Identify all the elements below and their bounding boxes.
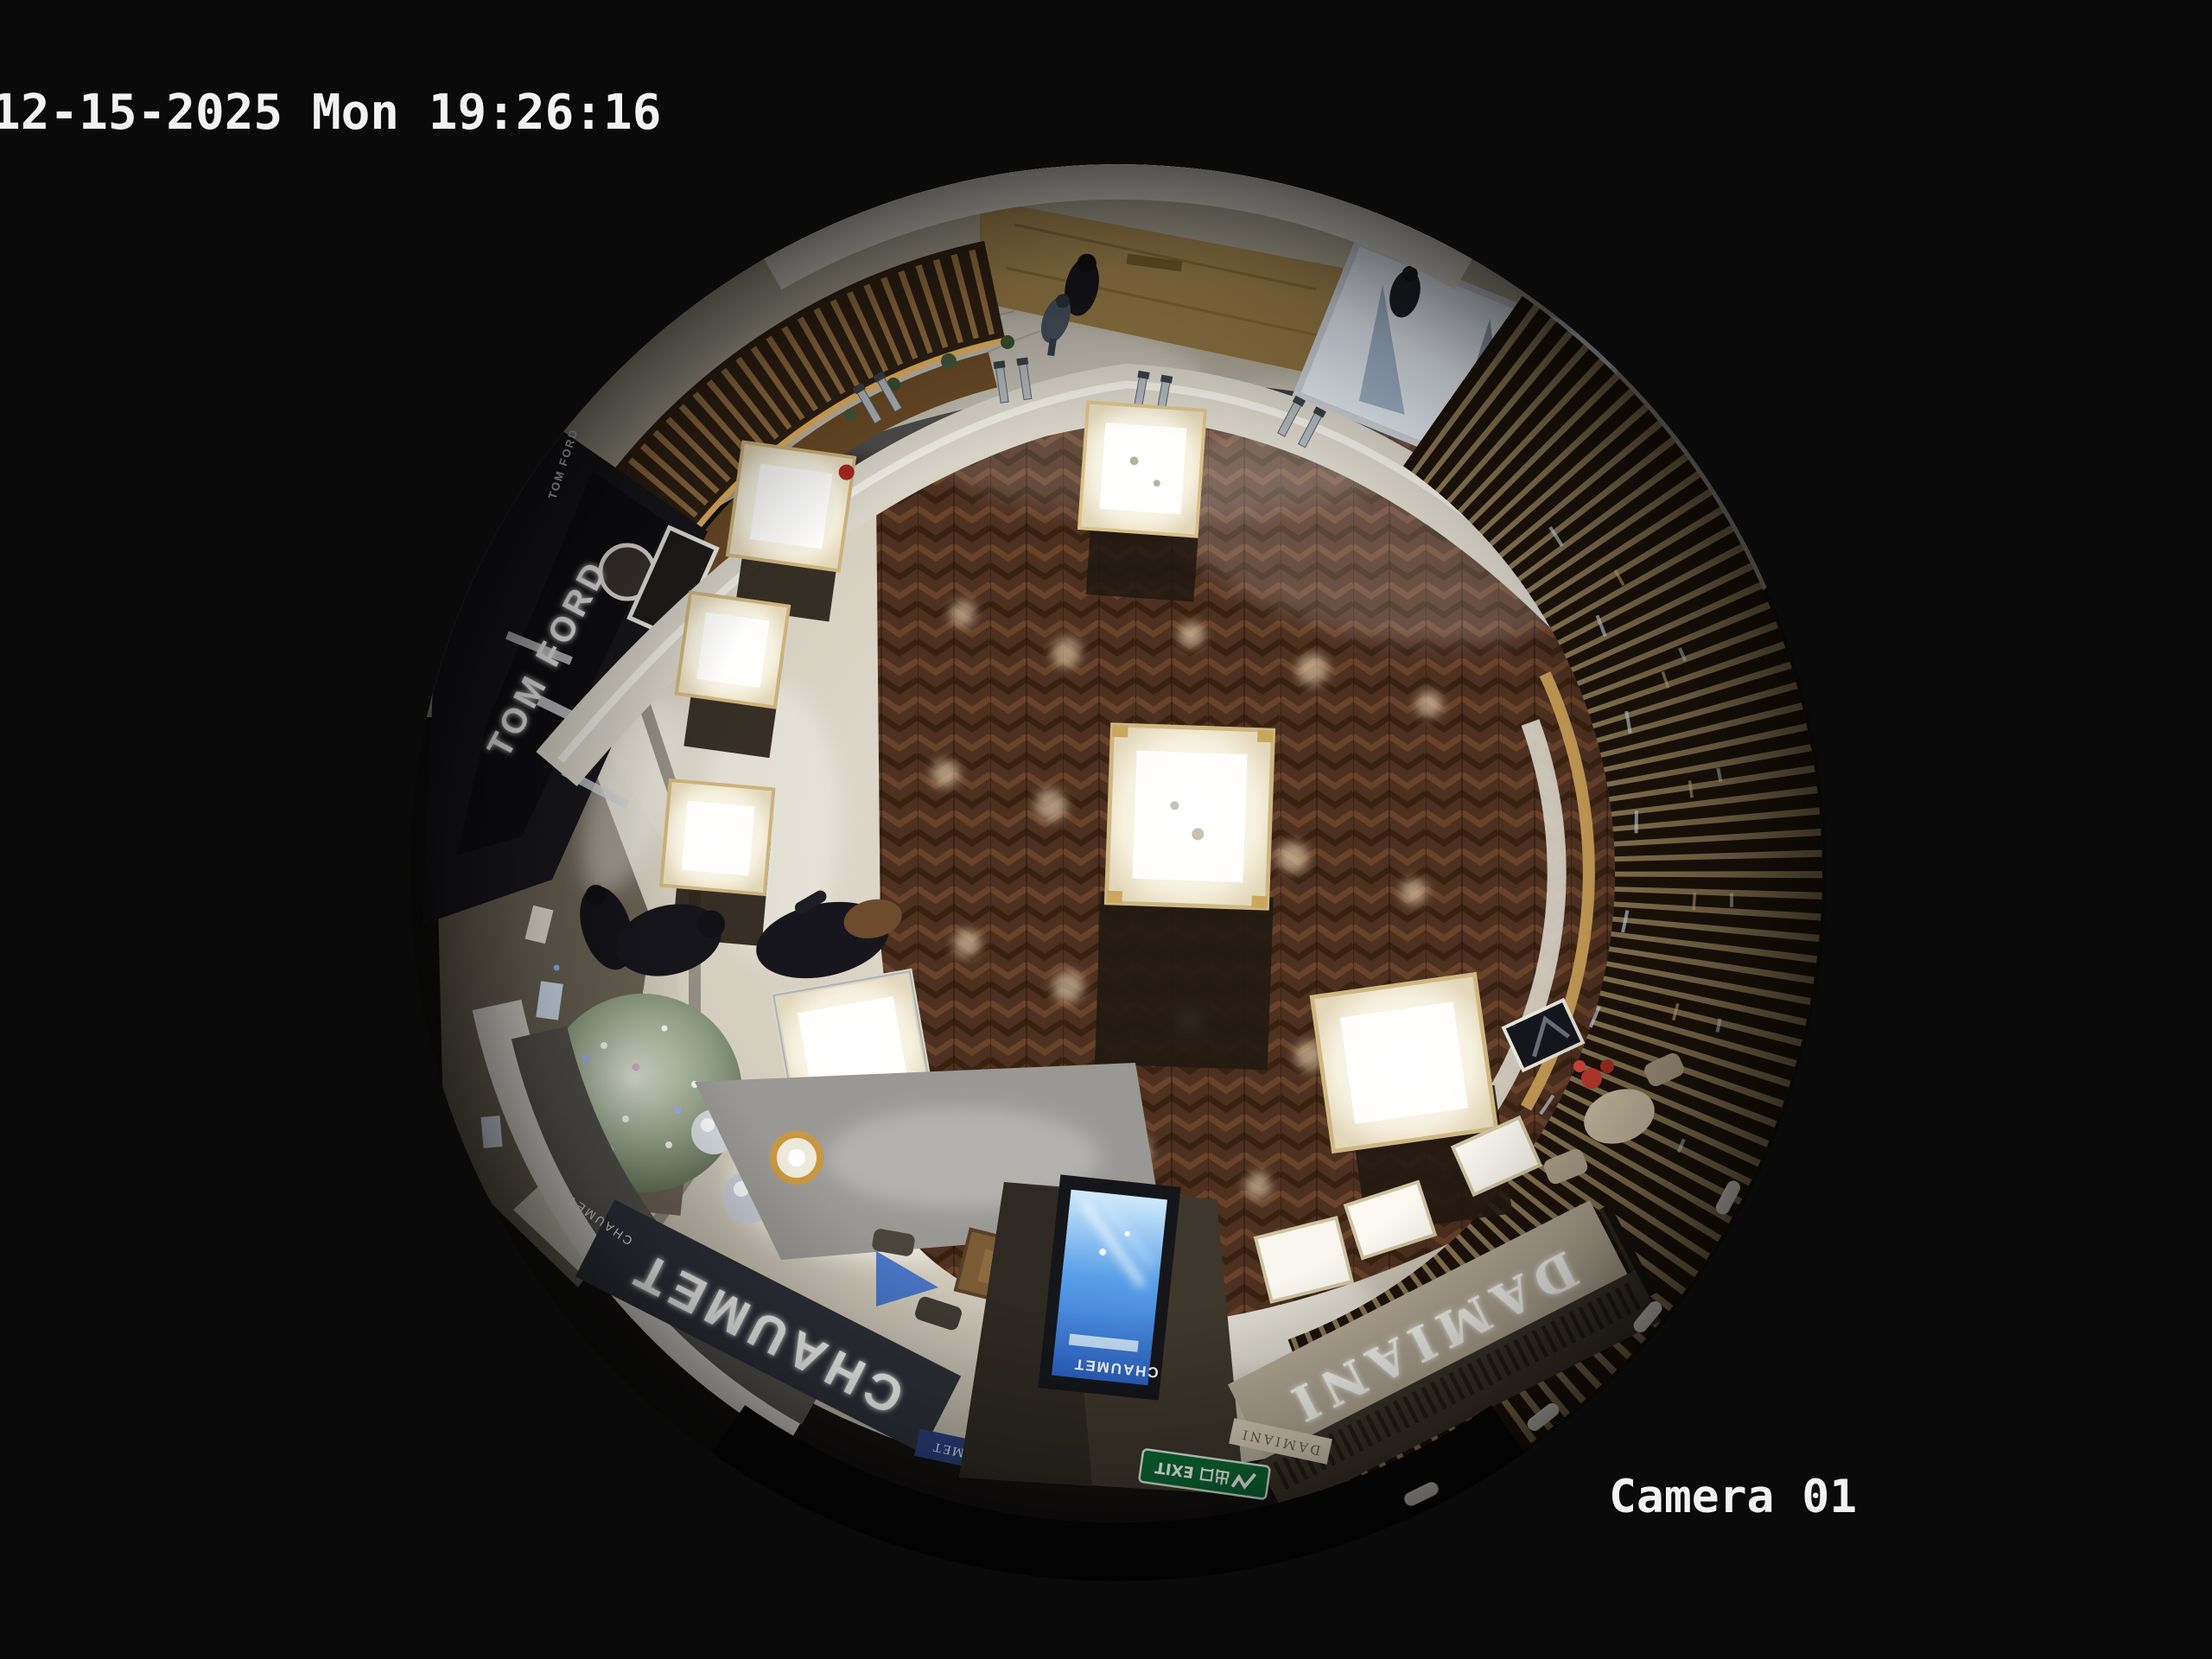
fisheye-view: TOM FORD TOM FORD — [410, 164, 1827, 1581]
camera-label: Camera 01 — [1609, 1471, 1857, 1523]
timestamp-overlay: 12-15-2025 Mon 19:26:16 — [0, 85, 661, 141]
cctv-monitor: 12-15-2025 Mon 19:26:16 Camera 01 — [0, 0, 2212, 1659]
vignette — [410, 164, 1827, 1581]
